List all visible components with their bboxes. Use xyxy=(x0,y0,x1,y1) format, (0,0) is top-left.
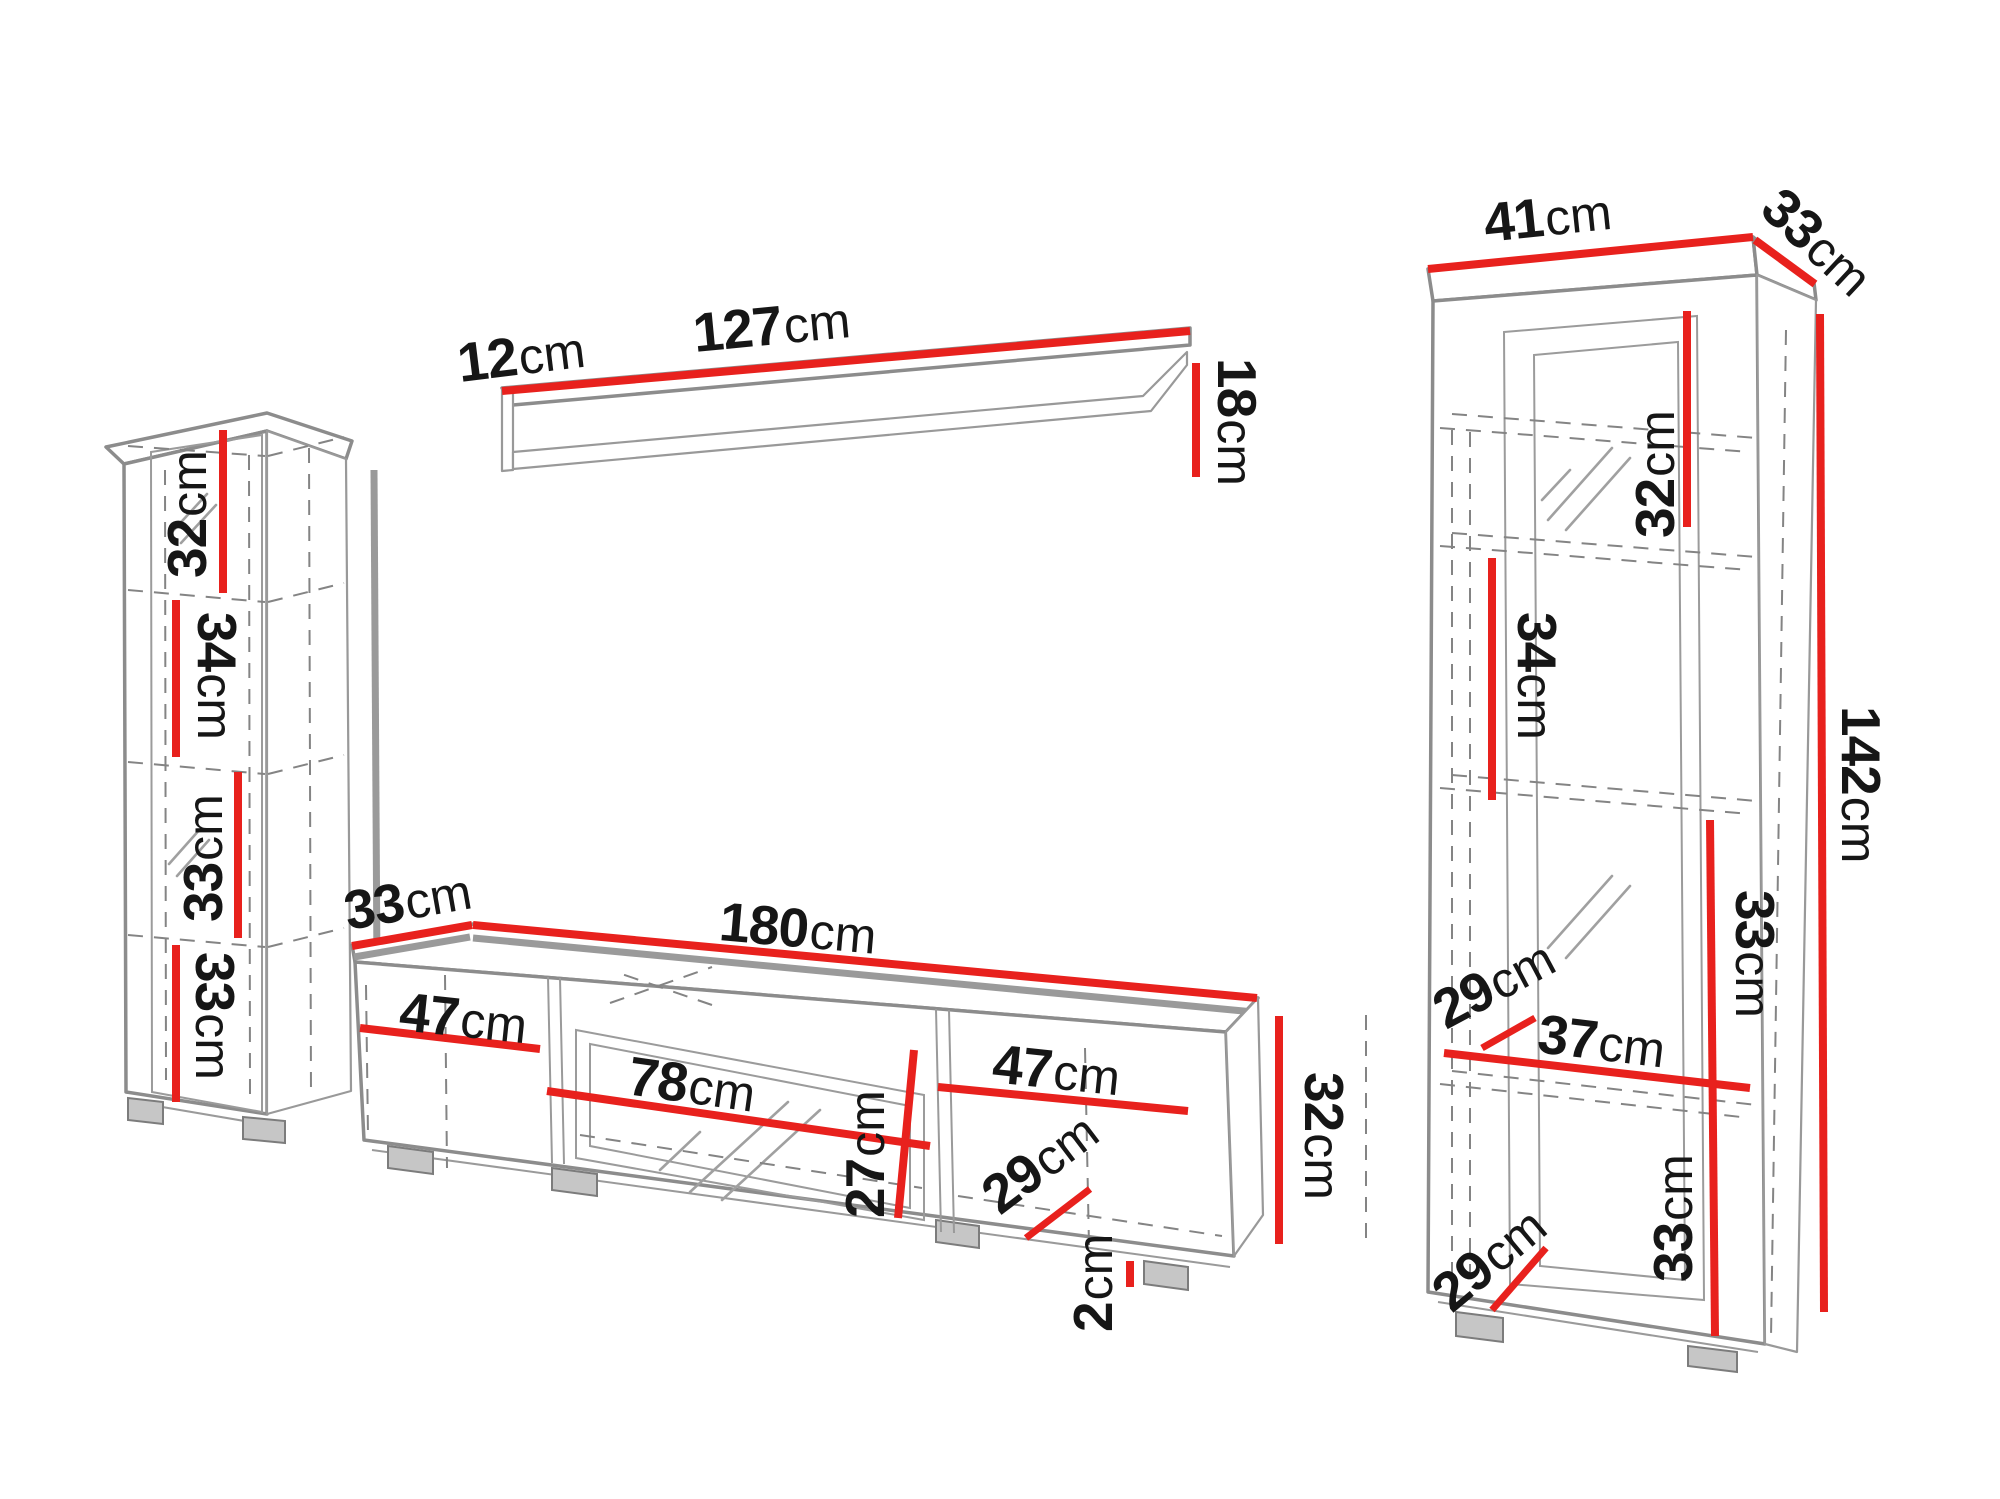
left-cabinet: 32cm 34cm 33cm 33cm xyxy=(106,413,377,1143)
left-cabinet-dim-34cm: 34cm xyxy=(186,612,248,740)
wall-shelf-dim-127cm: 127cm xyxy=(690,287,853,364)
left-cabinet-dim-32cm: 32cm xyxy=(156,450,218,578)
right-cabinet-dim-33cm-lower: 33cm xyxy=(1642,1154,1704,1282)
furniture-dimension-diagram: 32cm 34cm 33cm 33cm 12cm 127cm 18cm xyxy=(0,0,2000,1499)
tv-stand-dim-2cm: 2cm xyxy=(1062,1234,1124,1332)
right-cabinet-dim-142cm: 142cm xyxy=(1830,706,1892,863)
wall-shelf-dim-18cm: 18cm xyxy=(1206,358,1268,486)
right-cabinet-dim-line-142 xyxy=(1820,314,1824,1312)
right-cabinet-side-face xyxy=(1757,275,1816,1352)
tv-stand-dim-27cm: 27cm xyxy=(834,1090,896,1218)
tv-stand-side-face xyxy=(1226,998,1263,1256)
left-cabinet-foot-right xyxy=(243,1117,285,1143)
right-cabinet-dim-41cm: 41cm xyxy=(1481,179,1615,254)
tv-stand-foot-3 xyxy=(936,1220,979,1248)
right-cabinet-dim-34cm: 34cm xyxy=(1506,612,1568,740)
left-cabinet-dim-33cm-a: 33cm xyxy=(172,794,234,922)
diagram-canvas: 32cm 34cm 33cm 33cm 12cm 127cm 18cm xyxy=(0,0,2000,1499)
wall-shelf-left-cap xyxy=(502,389,513,471)
tv-stand-foot-2 xyxy=(552,1168,597,1196)
right-cabinet-dim-32cm: 32cm xyxy=(1624,410,1686,538)
left-cabinet-foot-left xyxy=(128,1098,163,1124)
right-cabinet: 41cm 33cm 32cm 34cm 29cm 37cm 33cm 33cm … xyxy=(1366,175,1892,1372)
tv-stand-foot-1 xyxy=(388,1146,433,1174)
right-cabinet-dim-33cm-upper: 33cm xyxy=(1724,890,1786,1018)
right-cabinet-foot-right xyxy=(1688,1346,1737,1372)
left-cabinet-dim-33cm-b: 33cm xyxy=(184,952,246,1080)
right-cabinet-dim-line-33-long xyxy=(1710,820,1715,1336)
tv-stand: 33cm 180cm 47cm 78cm 27cm 47cm 29cm 32cm… xyxy=(339,859,1355,1332)
tv-stand-dim-32cm: 32cm xyxy=(1293,1072,1355,1200)
tv-stand-foot-4 xyxy=(1144,1261,1188,1290)
wall-shelf: 12cm 127cm 18cm xyxy=(454,287,1268,486)
